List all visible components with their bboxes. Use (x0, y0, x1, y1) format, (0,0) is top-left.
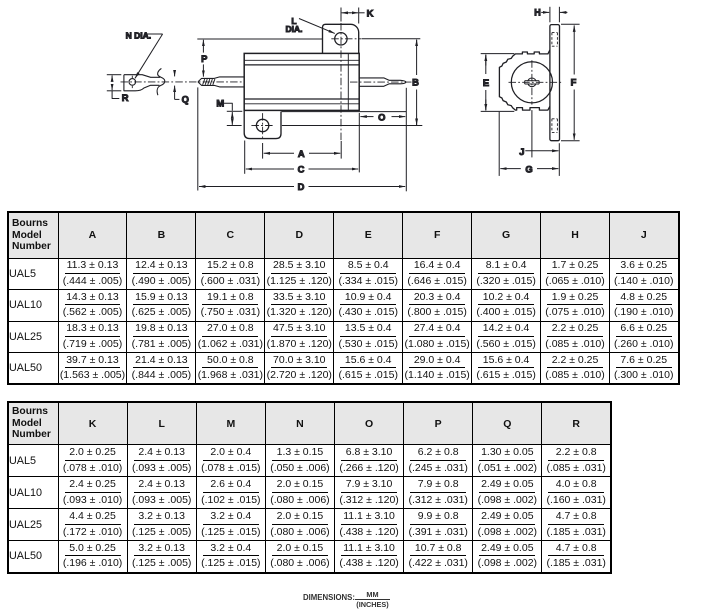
svg-text:H: H (534, 8, 541, 18)
svg-text:M: M (216, 98, 224, 109)
svg-text:A: A (298, 148, 305, 159)
svg-text:P: P (201, 53, 207, 64)
svg-text:Q: Q (182, 93, 189, 104)
svg-text:E: E (483, 77, 489, 88)
svg-text:R: R (122, 92, 129, 103)
svg-text:J: J (519, 146, 524, 157)
svg-text:F: F (571, 76, 577, 87)
svg-text:K: K (367, 7, 374, 18)
svg-text:G: G (525, 163, 532, 174)
svg-text:N DIA.: N DIA. (126, 30, 152, 40)
svg-text:D: D (298, 181, 305, 192)
svg-text:C: C (298, 164, 305, 175)
svg-text:O: O (378, 111, 385, 122)
svg-text:DIA.: DIA. (286, 24, 303, 34)
svg-text:B: B (412, 76, 419, 87)
